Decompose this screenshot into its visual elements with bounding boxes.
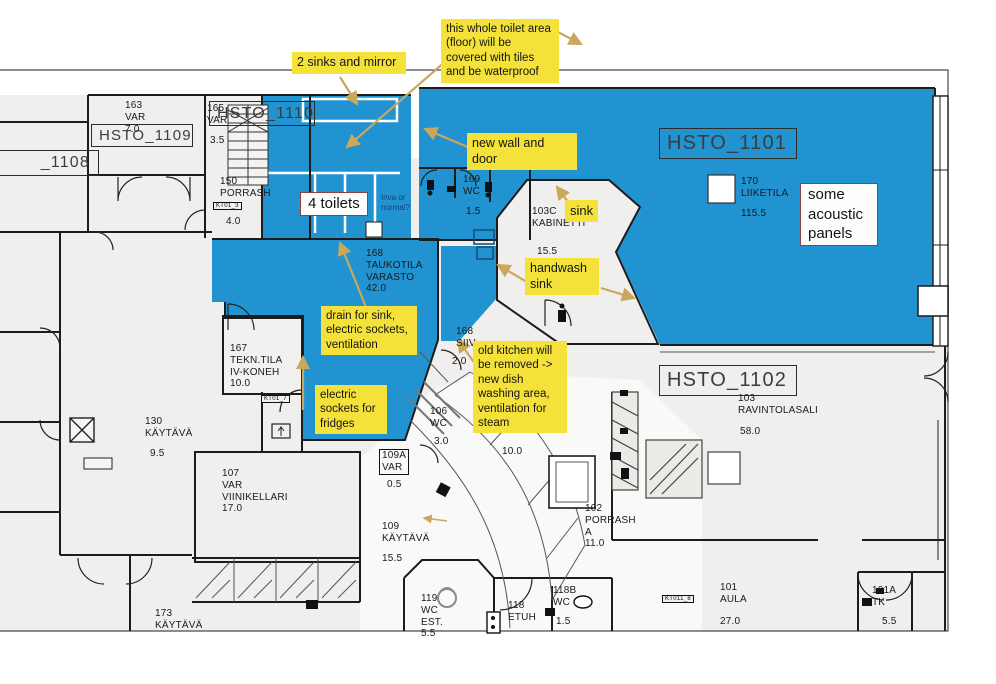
room-label-101a: 101A TK: [872, 585, 896, 609]
room-label-101a-area: 5.5: [882, 616, 897, 628]
badge-kt01-3: KT01_3: [213, 202, 242, 210]
room-label-168-siiv-area: 2.0: [452, 356, 467, 368]
room-label-167: 167 TEKN.TILA IV-KONEH 10.0: [230, 343, 282, 390]
room-label-118b: 118B WC: [553, 585, 576, 609]
sink-icon: [447, 186, 456, 192]
room-label-118: 118 ETUH: [508, 600, 536, 624]
room-label-118b-area: 1.5: [556, 616, 571, 628]
room-label-170-area: 115.5: [741, 208, 766, 220]
room-label-109a-area: 0.5: [387, 479, 402, 491]
room-label-109-area: 15.5: [382, 553, 402, 565]
room-label-109: 109 KÄYTÄVÄ: [382, 521, 430, 545]
room-label-106-area: 3.0: [434, 436, 449, 448]
room-label-130: 130 KÄYTÄVÄ: [145, 416, 193, 440]
zone-label-hsto-1109: HSTO_1109: [91, 124, 193, 147]
room-label-103: 103 RAVINTOLASALI: [738, 393, 818, 417]
wc-icon: [545, 608, 555, 616]
callout-four-toilets: 4 toilets: [300, 192, 368, 216]
room-label-119: 119 WC EST. 5.5: [421, 593, 443, 640]
room-label-105-area: 10.0: [502, 446, 522, 458]
toilet-seat-icon: [574, 596, 592, 608]
room-label-169: 169 WC: [463, 174, 480, 198]
note-sockets-fridges: electric sockets for fridges: [315, 385, 387, 434]
room-label-150-area: 4.0: [226, 216, 241, 228]
zone-label-hsto-1108: _1108: [0, 150, 99, 176]
zone-label-hsto-1101: HSTO_1101: [659, 128, 797, 159]
note-sink: sink: [565, 200, 598, 222]
note-toilet-floor: this whole toilet area (floor) will be c…: [441, 19, 559, 83]
new-wall-strip: [411, 90, 419, 158]
room-label-106: 106 WC: [430, 406, 447, 430]
room-label-150: 150 PORRASH: [220, 176, 271, 200]
room-label-102: 102 PORRASH A 11.0: [585, 503, 636, 550]
elevator-shaft: [549, 456, 595, 508]
note-drain-sockets: drain for sink, electric sockets, ventil…: [321, 306, 417, 355]
zone-label-hsto-1102: HSTO_1102: [659, 365, 797, 396]
room-label-130-area: 9.5: [150, 448, 165, 460]
room-label-169-area: 1.5: [466, 206, 481, 218]
note-new-wall-door: new wall and door: [467, 133, 577, 170]
room-label-103-area: 58.0: [740, 426, 760, 438]
room-label-103c-area: 15.5: [537, 246, 557, 258]
room-label-101: 101 AULA: [720, 582, 747, 606]
badge-kt01-7: KT01_7: [261, 395, 290, 403]
badge-kt011-8: KT011_8: [662, 595, 694, 603]
room-label-173: 173 KÄYTÄVÄ: [155, 608, 203, 632]
zone-label-hsto-1110: HSTO_1110: [209, 101, 315, 126]
service-box-icon: [487, 612, 500, 633]
room-label-168-taukotila: 168 TAUKOTILA VARASTO 42.0: [366, 248, 423, 295]
room-label-107: 107 VAR VIINIKELLARI 17.0: [222, 468, 288, 515]
room-label-101-area: 27.0: [720, 616, 740, 628]
callout-acoustic-panels: some acoustic panels: [800, 183, 878, 246]
note-sinks-mirror: 2 sinks and mirror: [292, 52, 406, 74]
inva-question-text: Inva or normal?: [381, 193, 410, 212]
floor-plan: _1108 HSTO_1109 HSTO_1110 HSTO_1101 HSTO…: [0, 0, 996, 684]
column-symbol: [708, 175, 735, 203]
kitchen-icon: [306, 600, 318, 609]
room-label-165-area: 3.5: [210, 135, 225, 147]
note-handwash-sink: handwash sink: [525, 258, 599, 295]
room-label-109a: 109A VAR: [379, 449, 409, 475]
room-label-170: 170 LIIKETILA: [741, 176, 788, 200]
note-old-kitchen: old kitchen will be removed -> new dish …: [473, 341, 567, 433]
